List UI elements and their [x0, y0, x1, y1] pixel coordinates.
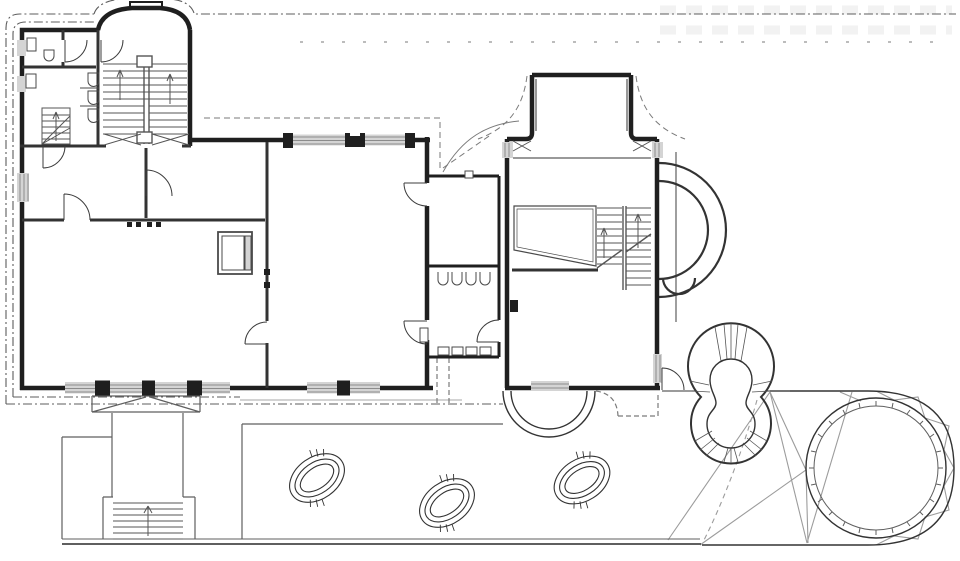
door-hall-partition — [146, 170, 172, 196]
flare-cross-marks — [513, 141, 651, 151]
fixtures — [26, 38, 491, 355]
door-apse-exit — [662, 368, 684, 390]
skylight-ring-inner — [295, 459, 338, 498]
skylight-ellipse-2 — [407, 464, 487, 543]
center-post-notch-top — [350, 129, 360, 136]
floor-plan-drawing — [0, 0, 960, 561]
east-apse — [659, 163, 726, 297]
right-wing-window-s — [531, 381, 569, 391]
right-wing-window-w — [502, 142, 513, 158]
wall-block-1 — [264, 269, 270, 275]
north-post-3 — [405, 133, 415, 148]
wc-sink-1 — [27, 38, 36, 51]
annex-partitions — [20, 30, 191, 146]
hall-socket-4 — [156, 222, 161, 227]
annex-west-niche-1 — [17, 40, 26, 56]
south-post-3 — [187, 381, 202, 396]
glass-circle-inner — [814, 406, 938, 530]
north-post-1 — [283, 133, 293, 148]
hall-socket-1 — [127, 222, 132, 227]
skylights — [277, 439, 622, 543]
connector-top-tick — [465, 171, 473, 178]
door-connector — [477, 320, 499, 342]
south-post-1 — [95, 381, 110, 396]
door-annex-2 — [101, 40, 123, 62]
door-annex-1 — [65, 40, 87, 62]
door-hall-south — [64, 194, 90, 220]
right-wing-stair-treads — [597, 208, 651, 285]
window-posts — [95, 133, 415, 396]
right-wing-walls — [505, 75, 660, 388]
east-wall-opening-1 — [422, 183, 432, 206]
vestibule-arch-columns — [438, 272, 490, 285]
vestibule-step-4 — [480, 347, 491, 355]
door-hall-west — [43, 146, 65, 168]
connector-wall-box — [420, 328, 428, 342]
skylight-ticks — [283, 443, 350, 512]
roof-overhang-lines — [204, 42, 950, 168]
keyhole-radial-hatch — [690, 323, 772, 463]
south-post-4 — [337, 381, 350, 396]
right-wing-notch — [510, 300, 518, 312]
glazing-line-strokes — [20, 137, 660, 392]
vestibule-step-1 — [438, 347, 449, 355]
stair-newel-top — [137, 56, 152, 67]
vestibule-step-2 — [452, 347, 463, 355]
skylight-ring-inner — [560, 461, 603, 499]
faint-pattern-lines — [660, 10, 952, 30]
stage-platform — [514, 206, 596, 266]
exterior-stair-treads — [113, 503, 183, 539]
south-post-2 — [142, 381, 155, 396]
skylight-ring-inner — [425, 484, 468, 523]
annex-west-niche-2 — [17, 76, 26, 92]
connector-walls — [427, 176, 499, 357]
wall-block-2 — [264, 282, 270, 288]
skylight-ring-outer — [545, 446, 618, 513]
right-wing-window-se — [653, 354, 662, 383]
terrace-boundary — [702, 391, 954, 545]
platform-inner — [517, 209, 593, 262]
round-terrace-outline — [702, 391, 954, 545]
skylight-ticks — [549, 445, 615, 514]
wc-sink-2 — [26, 74, 36, 88]
hall-socket-2 — [136, 222, 141, 227]
skylight-ring-mid — [288, 451, 346, 504]
hall-socket-3 — [147, 222, 152, 227]
skylight-ticks — [413, 468, 480, 537]
skylight-ellipse-3 — [542, 441, 621, 519]
wall-opening-masks — [350, 129, 432, 340]
platform-outline — [514, 206, 596, 266]
stair-newel-bottom — [137, 132, 152, 143]
left-wing-west-annex — [22, 8, 190, 390]
apse-porch-arcs — [503, 391, 595, 437]
window-glazing — [17, 40, 663, 394]
keyhole-stair — [688, 323, 774, 463]
round-terrace — [668, 391, 954, 545]
apse-arcs — [659, 163, 726, 297]
glazing-lines — [20, 137, 660, 392]
right-wing-stair-stringers — [597, 206, 651, 290]
keyhole-peanut — [707, 359, 755, 448]
west-window — [17, 173, 29, 202]
door-room-divider — [245, 322, 267, 344]
right-wing-flare-dash — [478, 76, 685, 139]
exterior-walls — [20, 2, 660, 390]
truss-dashed-curve — [703, 400, 757, 542]
skylight-ellipse-1 — [277, 439, 357, 518]
right-wing-window-e — [652, 142, 663, 158]
main-stair-treads — [103, 64, 187, 134]
skylight-ring-mid — [418, 476, 476, 529]
floor-plan-canvas — [0, 0, 960, 561]
winder-stair-treads — [42, 112, 70, 144]
arch-top-block — [130, 2, 162, 8]
skylight-ring-mid — [553, 454, 611, 506]
fireplace-flue — [245, 236, 251, 270]
faint-roof-pattern — [660, 10, 952, 30]
vestibule-step-3 — [466, 347, 477, 355]
stairs — [42, 56, 651, 539]
